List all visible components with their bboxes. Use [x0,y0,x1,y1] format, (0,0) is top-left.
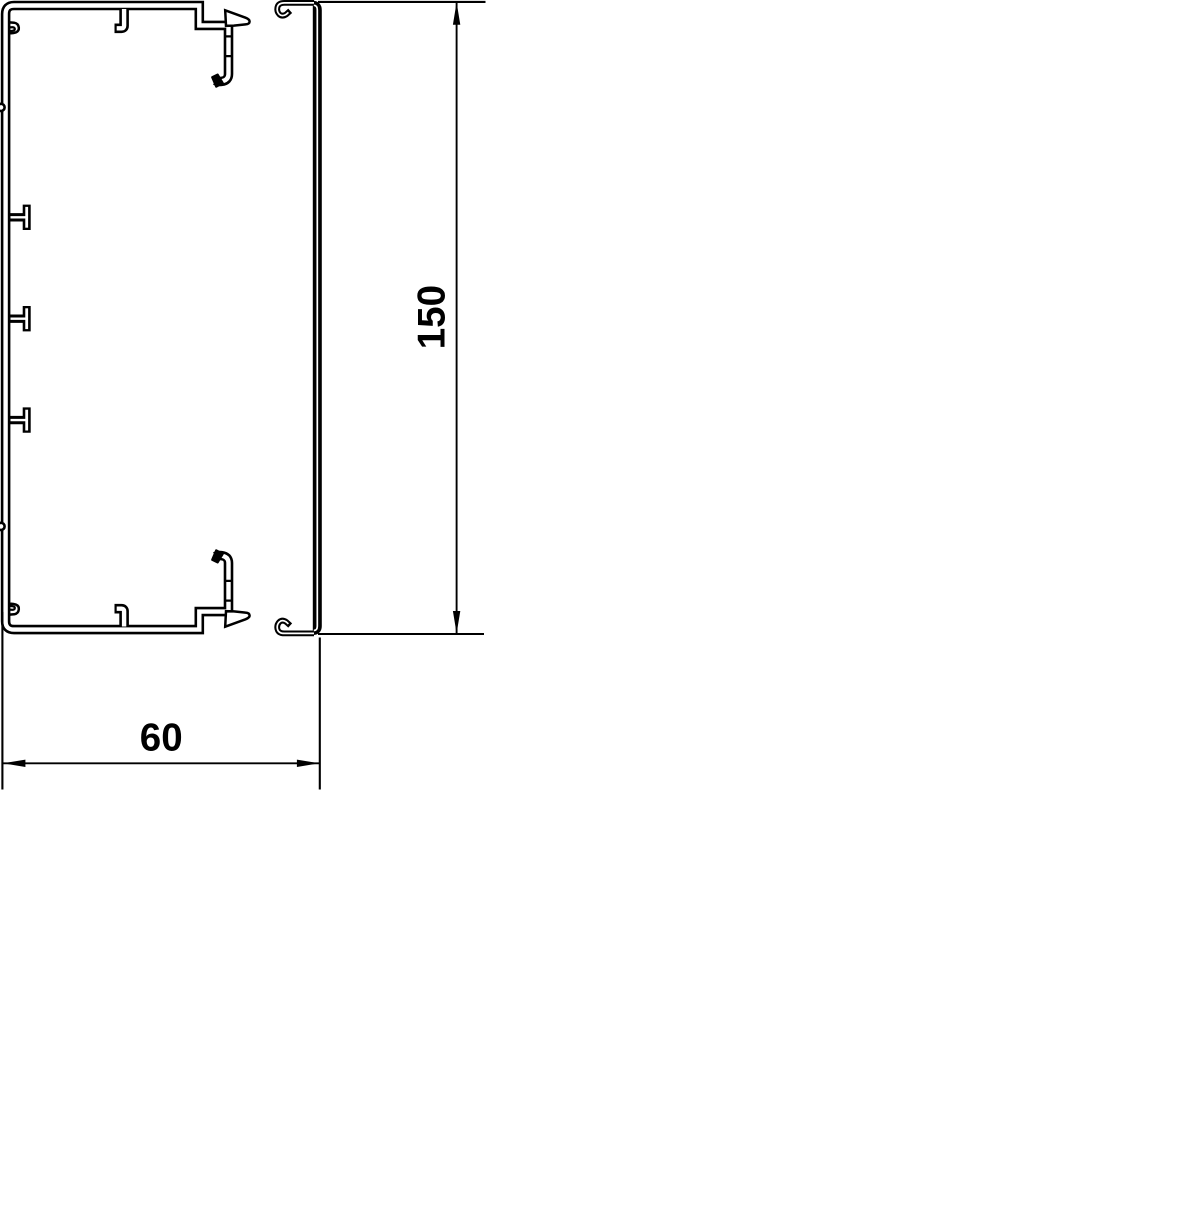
svg-text:150: 150 [411,285,454,349]
svg-text:60: 60 [140,717,183,760]
